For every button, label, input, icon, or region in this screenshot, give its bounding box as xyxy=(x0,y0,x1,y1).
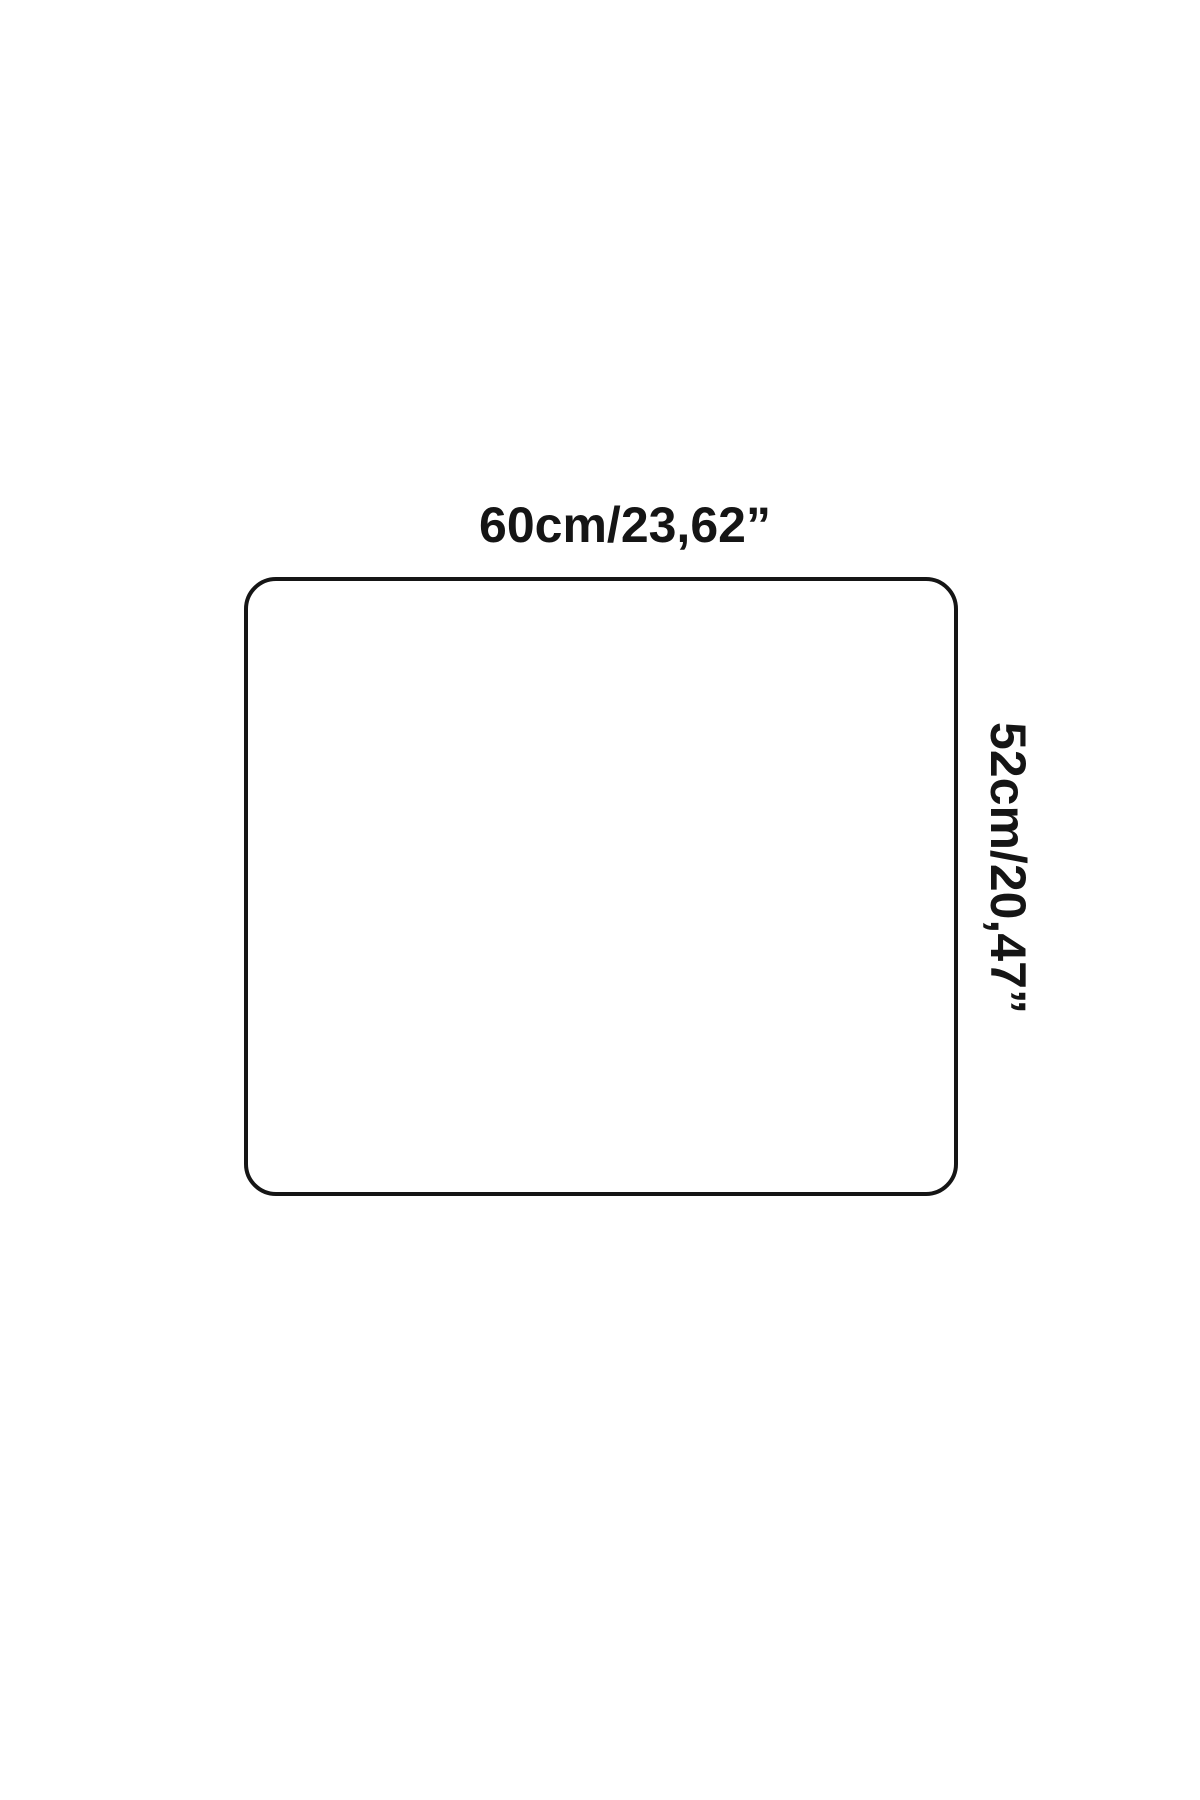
product-outline-rectangle xyxy=(244,577,958,1196)
width-dimension-label: 60cm/23,62” xyxy=(479,500,771,550)
page: { "diagram": { "type": "product-dimensio… xyxy=(0,0,1200,1800)
diagram-canvas: 60cm/23,62” 52cm/20,47” xyxy=(0,0,1200,1800)
height-dimension-label: 52cm/20,47” xyxy=(983,722,1033,1014)
